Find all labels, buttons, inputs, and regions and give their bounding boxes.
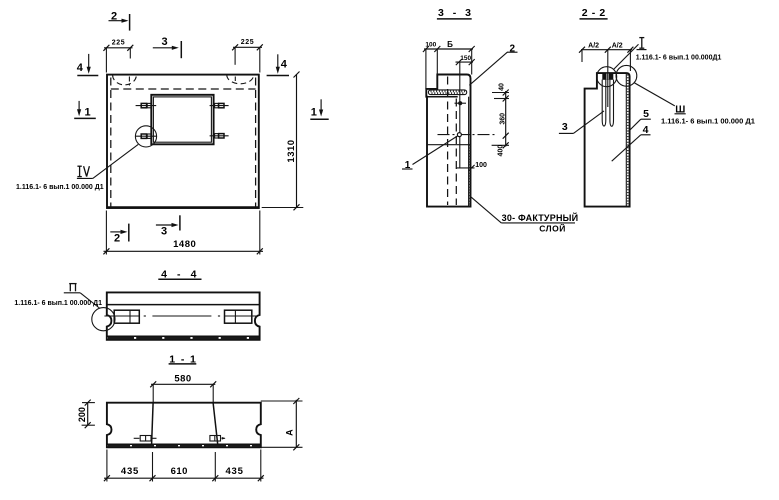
svg-text:435: 435 (121, 466, 139, 477)
svg-text:1.116.1- 6 вып.1 00.000Д1: 1.116.1- 6 вып.1 00.000Д1 (636, 55, 722, 62)
svg-text:3 - 3: 3 - 3 (438, 7, 474, 19)
svg-text:4: 4 (643, 124, 649, 136)
svg-text:610: 610 (171, 466, 188, 477)
svg-text:1.116.1- 6 вып.1 00.000 Д1: 1.116.1- 6 вып.1 00.000 Д1 (14, 300, 102, 307)
svg-text:4: 4 (77, 62, 84, 74)
svg-text:5: 5 (643, 108, 649, 120)
svg-text:100: 100 (475, 162, 487, 169)
svg-text:1: 1 (84, 106, 90, 118)
svg-text:580: 580 (174, 374, 191, 385)
svg-text:100: 100 (425, 42, 436, 49)
svg-text:4: 4 (281, 59, 288, 71)
svg-text:2: 2 (114, 232, 120, 244)
svg-text:Ш: Ш (675, 105, 685, 116)
svg-text:2: 2 (510, 43, 516, 54)
svg-text:40: 40 (499, 83, 506, 91)
svg-text:1.116.1- 6 вып.1 00.000 Д1: 1.116.1- 6 вып.1 00.000 Д1 (661, 117, 755, 126)
svg-text:1: 1 (311, 107, 317, 119)
svg-text:150: 150 (460, 55, 471, 62)
svg-text:1310: 1310 (286, 139, 297, 162)
svg-text:А/2: А/2 (612, 43, 623, 50)
svg-text:А: А (284, 429, 294, 436)
svg-text:3: 3 (161, 36, 167, 48)
svg-text:1.116.1- 6 вып.1 00.000 Д1: 1.116.1- 6 вып.1 00.000 Д1 (16, 184, 104, 191)
svg-text:СЛОЙ: СЛОЙ (539, 222, 566, 233)
svg-text:2 - 2: 2 - 2 (582, 7, 606, 19)
svg-text:360: 360 (500, 113, 507, 125)
svg-text:А/2: А/2 (588, 43, 599, 50)
svg-text:30- ФАКТУРНЫЙ: 30- ФАКТУРНЫЙ (502, 212, 579, 223)
svg-text:3: 3 (161, 225, 167, 237)
svg-text:1: 1 (405, 160, 411, 171)
svg-text:200: 200 (77, 407, 87, 422)
svg-text:400: 400 (497, 145, 504, 157)
svg-text:3: 3 (562, 121, 568, 133)
svg-text:Б: Б (447, 40, 453, 49)
svg-text:225: 225 (112, 40, 125, 47)
svg-text:225: 225 (241, 39, 254, 46)
svg-text:435: 435 (225, 466, 243, 477)
svg-text:2: 2 (111, 10, 117, 22)
svg-text:1480: 1480 (173, 239, 196, 250)
